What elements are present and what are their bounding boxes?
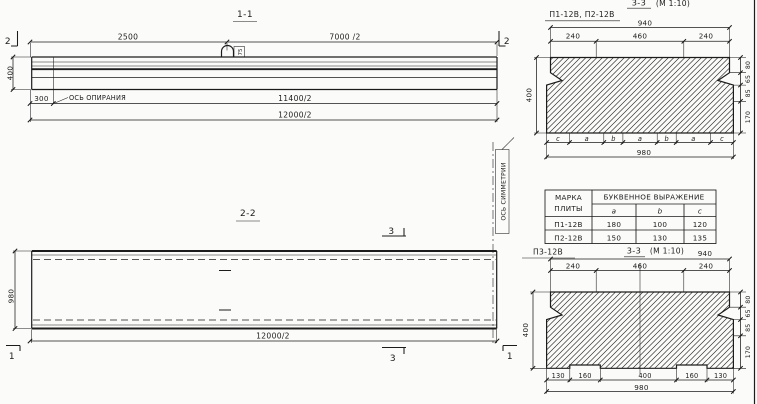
dim-label-240-left: 240 — [566, 32, 581, 41]
cell-mark: П2-12В — [554, 234, 582, 243]
table-header-plity: ПЛИТЫ — [554, 204, 582, 213]
dim-label-980: 980 — [634, 383, 649, 392]
section-2-2-plan: 2-2 3 3 980 12000/2 1 1 — [6, 209, 517, 364]
letter-a-3: a — [691, 135, 695, 143]
cell-b: 100 — [653, 220, 668, 229]
cut-mark-1-right: 1 — [507, 352, 513, 362]
table-subheader-c: c — [698, 207, 702, 216]
extension-lines — [11, 43, 497, 122]
cut-mark-1-left: 1 — [9, 352, 15, 362]
cut-mark-2-right: 2 — [504, 37, 510, 47]
table-row: П1-12В 180 100 120 — [554, 220, 707, 229]
dim-label-170: 170 — [745, 346, 752, 358]
dim-lines — [13, 42, 497, 120]
cut-mark-2-left: 2 — [5, 37, 11, 47]
dim-label-2500: 2500 — [118, 33, 139, 42]
table-header-span: БУКВЕННОЕ ВЫРАЖЕНИЕ — [603, 193, 704, 202]
dim-label-940: 940 — [638, 19, 653, 28]
plate-plan-inner-lines — [32, 255, 497, 325]
dim-label-400-bottom: 400 — [638, 372, 651, 380]
plate-mark-label: П3-12В — [533, 248, 563, 257]
dim-label-160-right: 160 — [685, 372, 698, 380]
loop-tag-label: 75 — [238, 48, 244, 55]
dim-label-7000-2: 7000 /2 — [329, 33, 360, 42]
dim-label-240-left: 240 — [566, 261, 581, 270]
section-3-3-top: 3-3 (М 1:10) П1-12В, П2-12В 940 240 460 … — [525, 0, 753, 159]
section-3-3-bottom: П3-12В 3-3 (М 1:10) 940 240 460 240 400 … — [521, 246, 752, 394]
dim-label-400-left: 400 — [521, 323, 530, 338]
dim-label-400: 400 — [6, 66, 15, 81]
cut-mark-3-bottom: 3 — [390, 354, 396, 364]
cell-a: 180 — [607, 220, 622, 229]
dim-label-85: 85 — [745, 324, 752, 332]
letter-a-2: a — [638, 135, 642, 143]
section-2-2-title: 2-2 — [240, 209, 256, 219]
dim-label-80: 80 — [745, 295, 752, 303]
cell-b: 130 — [653, 234, 668, 243]
table-subheader-b: b — [658, 207, 663, 216]
dim-label-12000-2: 12000/2 — [278, 111, 312, 120]
letter-b-2: b — [665, 135, 669, 143]
dim-label-65: 65 — [745, 309, 752, 317]
dim-label-240-right: 240 — [699, 261, 714, 270]
cross-section-body — [547, 58, 734, 134]
section-1-1-title: 1-1 — [237, 10, 253, 20]
table-subheader-a: a — [612, 207, 617, 216]
letter-b-1: b — [611, 135, 615, 143]
section-3-3-scale: (М 1:10) — [650, 247, 684, 256]
cut-mark-3-top: 3 — [388, 227, 394, 237]
plate-plan-hidden-lines — [33, 260, 496, 321]
lifting-loop — [222, 46, 234, 57]
dim-label-400: 400 — [525, 88, 534, 103]
section-1-1-elevation: 1-1 75 2 2 2500 7000 /2 400 300 11400/2 … — [5, 10, 510, 122]
dim-label-160-left: 160 — [579, 372, 592, 380]
table-header-marka: МАРКА — [555, 193, 582, 202]
letter-c-2: c — [720, 135, 724, 143]
blueprint-canvas: 1-1 75 2 2 2500 7000 /2 400 300 11400/2 … — [0, 0, 757, 404]
support-axis-label: ОСЬ ОПИРАНИЯ — [69, 94, 126, 102]
technical-drawing: 1-1 75 2 2 2500 7000 /2 400 300 11400/2 … — [0, 0, 757, 404]
dim-label-170: 170 — [745, 111, 752, 123]
plate-parameters-table: МАРКА ПЛИТЫ БУКВЕННОЕ ВЫРАЖЕНИЕ a b c П1… — [545, 190, 716, 244]
symmetry-label-leader — [502, 138, 514, 150]
section-3-3-scale: (М 1:10) — [656, 0, 690, 8]
cut-mark-2-strokes — [11, 31, 506, 46]
dim-label-65: 65 — [745, 75, 752, 83]
dim-label-940: 940 — [698, 249, 713, 258]
cell-c: 120 — [693, 220, 708, 229]
dim-label-80: 80 — [745, 61, 752, 69]
cell-c: 135 — [693, 234, 708, 243]
letter-c-1: c — [556, 135, 560, 143]
symmetry-axis-label: ОСЬ СИММЕТРИИ — [501, 162, 508, 220]
cell-a: 150 — [607, 234, 622, 243]
dim-lines — [15, 251, 497, 341]
plate-inner-lines — [32, 62, 497, 66]
cut-mark-3-strokes — [382, 228, 406, 354]
dim-label-980: 980 — [637, 148, 652, 157]
dim-label-11400-2: 11400/2 — [278, 94, 312, 103]
dim-label-130-right: 130 — [714, 372, 727, 380]
dim-label-240-right: 240 — [699, 32, 714, 41]
section-3-3-title: 3-3 — [627, 246, 642, 256]
dim-label-12000-2: 12000/2 — [256, 332, 290, 341]
cut-mark-1-strokes — [6, 346, 517, 352]
support-axis-leader — [55, 98, 68, 104]
dim-ticks — [11, 40, 499, 122]
dim-label-460: 460 — [633, 32, 648, 41]
dim-label-980: 980 — [7, 289, 16, 304]
letter-a-1: a — [585, 135, 589, 143]
plate-plan-sides — [32, 251, 497, 329]
dim-label-300: 300 — [34, 94, 49, 103]
cell-mark: П1-12В — [554, 220, 582, 229]
plate-marks-label: П1-12В, П2-12В — [549, 10, 614, 19]
dim-label-130-left: 130 — [552, 372, 565, 380]
plate-plan-edges — [32, 251, 497, 329]
section-3-3-title: 3-3 — [632, 0, 647, 8]
dim-label-85: 85 — [745, 89, 752, 97]
centerline-marks — [219, 271, 231, 311]
dim-label-460: 460 — [633, 261, 648, 270]
